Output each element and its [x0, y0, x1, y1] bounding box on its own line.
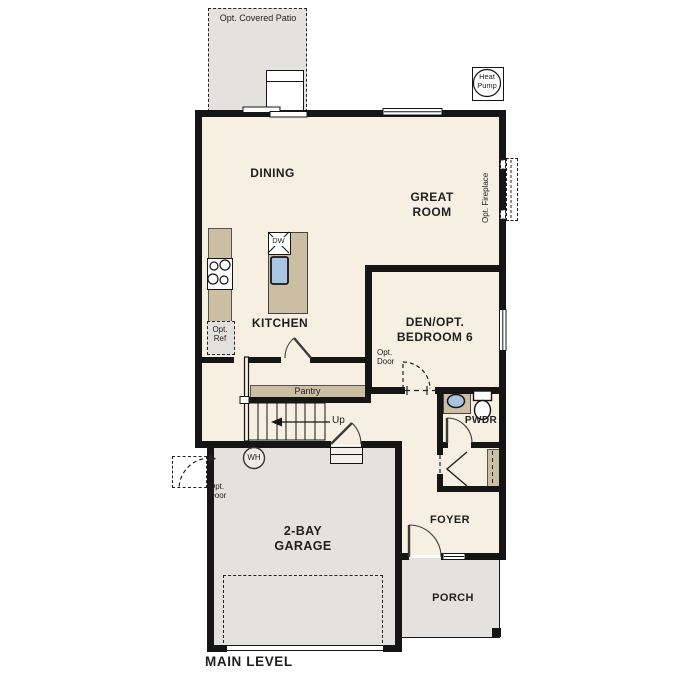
wall-segment [195, 110, 202, 445]
step-line [331, 454, 362, 455]
foyer-floor-area [400, 441, 501, 555]
chimney-line [267, 81, 303, 82]
wall-segment [437, 486, 506, 492]
opt-door-garage-outline [172, 456, 207, 488]
heat-pump-label: Heat Pump [472, 73, 502, 91]
den-label: DEN/OPT. BEDROOM 6 [375, 315, 495, 344]
cooktop [207, 258, 233, 290]
covered-patio-label: Opt. Covered Patio [212, 13, 304, 24]
porch-label: PORCH [428, 592, 478, 605]
foyer-label: FOYER [425, 514, 475, 527]
wall-segment [395, 553, 409, 560]
wall-segment [195, 441, 331, 448]
great-room-label: GREAT ROOM [403, 190, 461, 219]
wall-segment [395, 441, 402, 652]
dining-label: DINING [230, 166, 315, 181]
kitchen-label: KITCHEN [248, 316, 312, 331]
powder-counter [443, 391, 471, 414]
opt-door-den-label: Opt. Door [377, 348, 403, 367]
wall-segment [365, 387, 405, 394]
wall-segment [441, 553, 506, 560]
opt-ref-label: Opt. Ref [208, 325, 232, 344]
wall-segment [207, 446, 214, 652]
wall-segment [195, 357, 234, 363]
wall-segment [437, 448, 443, 455]
wall-segment [471, 442, 506, 448]
wall-segment [365, 265, 506, 272]
garage-label: 2-BAY GARAGE [263, 524, 343, 555]
porch-post [492, 628, 501, 637]
opt-fireplace-label: Opt. Fireplace [481, 157, 490, 223]
opt-fireplace-outline [506, 158, 518, 221]
pwdr-label: PWDR [462, 415, 500, 427]
wall-segment [437, 394, 443, 443]
garage-landing-steps [330, 447, 363, 464]
wall-segment [499, 110, 506, 560]
wall-segment [249, 357, 281, 363]
wall-segment [207, 645, 227, 652]
chimney [266, 70, 304, 111]
water-heater-label: WH [244, 453, 264, 462]
garage-door [227, 645, 383, 651]
main-level-title: MAIN LEVEL [205, 654, 325, 670]
dishwasher-label: DW [269, 237, 288, 246]
wall-segment [435, 387, 506, 394]
floor-plan: Opt. Covered Patio Heat Pump DINING GREA… [0, 0, 687, 687]
wall-segment [244, 397, 371, 403]
opt-door-garage-label: Opt. Door [209, 482, 235, 501]
pantry-label: Pantry [250, 386, 365, 397]
wall-segment [195, 110, 506, 117]
garage-door-dashed-outline [223, 575, 383, 648]
stairs-up-label: Up [332, 415, 345, 427]
wall-segment [310, 357, 371, 363]
